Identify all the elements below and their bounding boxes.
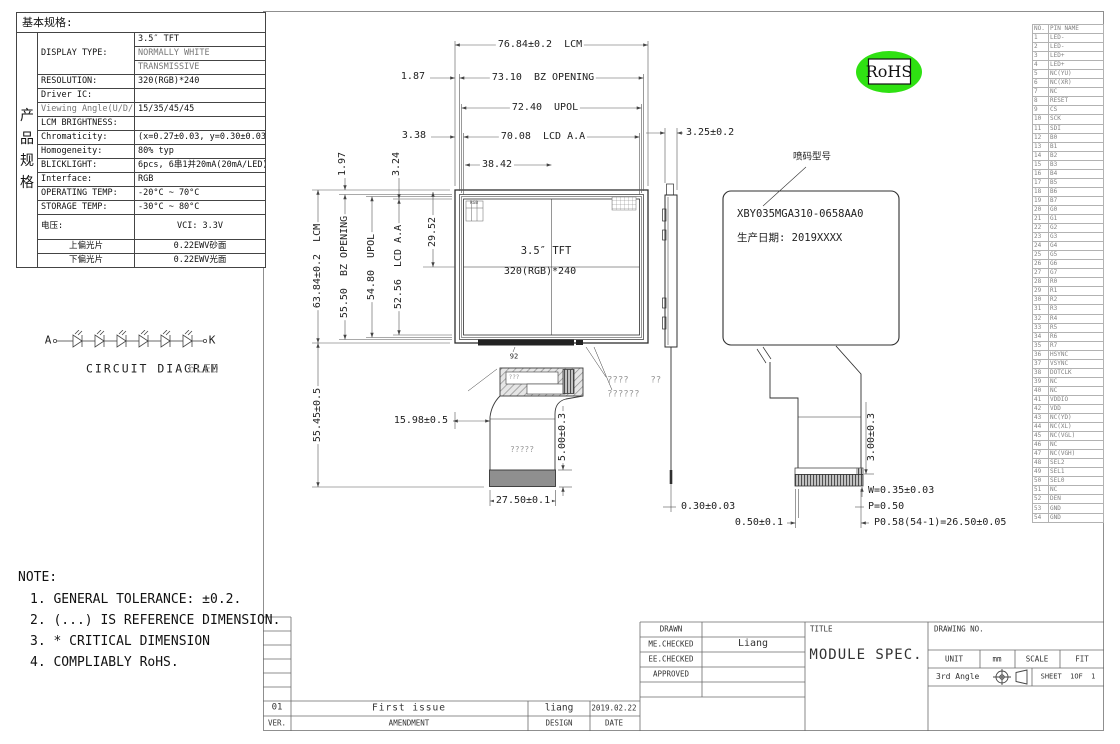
dim-pad-width: W=0.35±0.03 bbox=[866, 486, 936, 496]
pin-row: 38 DOTCLK bbox=[1033, 368, 1104, 377]
note-item-1: 1. GENERAL TOLERANCE: ±0.2. bbox=[30, 593, 241, 606]
dim-bz-height: 55.50 BZ OPENING bbox=[340, 214, 350, 320]
pin-row: 28 R0 bbox=[1033, 278, 1104, 287]
dim-fpc-offset: 15.98±0.5 bbox=[392, 416, 450, 426]
spec-voltage: VCI: 3.3V bbox=[135, 215, 266, 240]
fpc-note-4: ??? bbox=[509, 375, 520, 381]
pin-row: 37 VSYNC bbox=[1033, 359, 1104, 368]
pin-row: 5 NC(YU) bbox=[1033, 70, 1104, 79]
front-view-dimension-lines bbox=[312, 41, 648, 506]
spec-display-type-2: NORMALLY WHITE bbox=[135, 47, 266, 61]
note-item-4: 4. COMPLIABLY RoHS. bbox=[30, 656, 179, 669]
dim-pitch-total: P0.58(54-1)=26.50±0.05 bbox=[872, 518, 1008, 528]
pin-row: 50 SEL0 bbox=[1033, 477, 1104, 486]
panel-type-text: 3.5″ TFT bbox=[521, 246, 572, 257]
spec-resolution-label: RESOLUTION: bbox=[38, 75, 135, 89]
panel-resolution-text: 320(RGB)*240 bbox=[504, 267, 576, 277]
pin-row: 39 NC bbox=[1033, 377, 1104, 386]
pin-row: 45 NC(VGL) bbox=[1033, 432, 1104, 441]
pin-row: 54 GND bbox=[1033, 513, 1104, 522]
dim-upol-height: 54.80 UPOL bbox=[367, 232, 377, 302]
fpc-note-1: ???? ?? bbox=[607, 377, 661, 386]
drawing-title: MODULE SPEC. bbox=[809, 648, 922, 662]
approved-label: APPROVED bbox=[653, 670, 689, 678]
third-angle-projection-icon bbox=[993, 669, 1027, 685]
dim-bz-gap: 1.87 bbox=[399, 72, 427, 82]
rev-design-value: liang bbox=[545, 703, 574, 713]
pin-row: 13 B1 bbox=[1033, 142, 1104, 151]
spec-storage-temp-label: STORAGE TEMP: bbox=[38, 201, 135, 215]
spec-interface: RGB bbox=[135, 173, 266, 187]
pin-row: 40 NC bbox=[1033, 386, 1104, 395]
notes-title: NOTE: bbox=[18, 571, 57, 584]
pin-row: 11 SDI bbox=[1033, 124, 1104, 133]
pin-row: 3 LED+ bbox=[1033, 52, 1104, 61]
rev-ver-value: 01 bbox=[272, 704, 283, 713]
spec-driver-ic-label: Driver IC: bbox=[38, 89, 135, 103]
spec-header: 基本规格: bbox=[16, 12, 266, 33]
spec-chromaticity-label: Chromaticity: bbox=[38, 131, 135, 145]
circuit-cathode-label: K bbox=[209, 335, 216, 346]
pin-row: 31 R3 bbox=[1033, 305, 1104, 314]
front-view-fpc bbox=[468, 347, 612, 487]
unit-value: mm bbox=[992, 655, 1001, 663]
ref-mark-text: 92 bbox=[510, 354, 518, 361]
spec-driver-ic bbox=[135, 89, 266, 103]
pin-rows: 1 LED- 2 LED- 3 LED+ 4 bbox=[1033, 34, 1104, 523]
pin-row: 36 HSYNC bbox=[1033, 350, 1104, 359]
dim-connector-offset: 0.50±0.1 bbox=[733, 518, 785, 528]
spec-brightness-label: LCM BRIGHTNESS: bbox=[38, 117, 135, 131]
spec-bottom-polarizer-label: 下偏光片 bbox=[38, 254, 135, 268]
spec-brightness bbox=[135, 117, 266, 131]
spec-top-polarizer-label: 上偏光片 bbox=[38, 240, 135, 254]
pin-row: 43 NC(YD) bbox=[1033, 414, 1104, 423]
spec-viewing-angle-label: Viewing Angle(U/D/L/R) bbox=[38, 103, 135, 117]
spec-viewing-angle: 15/35/45/45 bbox=[135, 103, 266, 117]
pin-row: 18 B6 bbox=[1033, 187, 1104, 196]
pin-row: 44 NC(XL) bbox=[1033, 423, 1104, 432]
pin-row: 42 VDD bbox=[1033, 404, 1104, 413]
spec-display-type-label: DISPLAY TYPE: bbox=[38, 33, 135, 75]
dim-aa-width: 70.08 LCD A.A bbox=[499, 132, 587, 142]
ee-checked-label: EE.CHECKED bbox=[648, 655, 693, 663]
led-circuit-diagram bbox=[45, 330, 215, 352]
pin-row: 51 NC bbox=[1033, 486, 1104, 495]
rev-design-header: DESIGN bbox=[545, 719, 572, 727]
spec-voltage-label: 电压: bbox=[38, 215, 135, 240]
model-number-text: XBY035MGA310-0658AA0 bbox=[737, 209, 863, 220]
pin-row: 15 B3 bbox=[1033, 160, 1104, 169]
spec-table: 产 品 规 格 DISPLAY TYPE: 3.5″ TFT NORMALLY … bbox=[16, 32, 266, 268]
rev-ver-header: VER. bbox=[268, 719, 286, 727]
spec-homogeneity: 80% typ bbox=[135, 145, 266, 159]
pin-row: 27 G7 bbox=[1033, 269, 1104, 278]
dim-top-gap-bz: 1.97 bbox=[338, 150, 348, 178]
drawing-no-label: DRAWING NO. bbox=[934, 625, 984, 633]
spec-interface-label: Interface: bbox=[38, 173, 135, 187]
me-checked-label: ME.CHECKED bbox=[648, 640, 693, 648]
pin-row: 4 LED+ bbox=[1033, 61, 1104, 70]
fpc-note-2: ?????? bbox=[607, 391, 640, 400]
drawing-sheet: 基本规格: 产 品 规 格 DISPLAY TYPE: 3.5″ TFT NOR… bbox=[0, 0, 1120, 744]
pin-row: 32 R4 bbox=[1033, 314, 1104, 323]
pin-row: 17 B5 bbox=[1033, 178, 1104, 187]
note-item-3: 3. * CRITICAL DIMENSION bbox=[30, 635, 210, 648]
pin-assignment-table: NO. PIN NAME 1 LED- 2 LED- bbox=[1032, 24, 1104, 523]
dim-stiffener-height: 5.00±0.3 bbox=[558, 411, 568, 463]
dim-thickness: 3.25±0.2 bbox=[684, 128, 736, 138]
spec-resolution: 320(RGB)*240 bbox=[135, 75, 266, 89]
pin-row: 14 B2 bbox=[1033, 151, 1104, 160]
dim-connector-height: 3.00±0.3 bbox=[867, 411, 877, 463]
rev-date-header: DATE bbox=[605, 719, 623, 727]
pin-row: 33 R5 bbox=[1033, 323, 1104, 332]
pin-row: 52 DEN bbox=[1033, 495, 1104, 504]
title-label: TITLE bbox=[810, 625, 833, 633]
dim-top-gap-aa: 3.24 bbox=[392, 150, 402, 178]
production-date-text: 生产日期: 2019XXXX bbox=[737, 233, 842, 244]
dim-upol-width: 72.40 UPOL bbox=[510, 103, 580, 113]
checked-by-value: Liang bbox=[738, 639, 768, 649]
pin-row: 53 GND bbox=[1033, 504, 1104, 513]
pin-row: 16 B4 bbox=[1033, 169, 1104, 178]
pin-row: 41 VDDIO bbox=[1033, 395, 1104, 404]
pin-row: 7 NC bbox=[1033, 88, 1104, 97]
pin-row: 24 G4 bbox=[1033, 242, 1104, 251]
rev-date-value: 2019.02.22 bbox=[591, 704, 636, 712]
pin-col-no: NO. bbox=[1033, 25, 1049, 34]
dim-half-height: 29.52 bbox=[428, 215, 438, 249]
rev-amendment-header: AMENDMENT bbox=[389, 719, 430, 727]
led-symbols bbox=[73, 330, 192, 347]
pin-row: 46 NC bbox=[1033, 441, 1104, 450]
inkjet-model-leader-label: 喷码型号 bbox=[793, 152, 831, 162]
pin-row: 21 G1 bbox=[1033, 214, 1104, 223]
spec-side-label: 产 品 规 格 bbox=[17, 33, 38, 268]
dim-fpc-thickness: 0.30±0.03 bbox=[679, 502, 737, 512]
pin-row: 19 B7 bbox=[1033, 196, 1104, 205]
pin-row: 34 R6 bbox=[1033, 332, 1104, 341]
dim-lcm-height: 63.84±0.2 LCM bbox=[313, 222, 323, 310]
projection-angle-label: 3rd Angle bbox=[936, 673, 979, 681]
sheet-frame bbox=[264, 12, 1104, 731]
note-item-2: 2. (...) IS REFERENCE DIMENSION. bbox=[30, 614, 280, 627]
pin-col-name: PIN NAME bbox=[1049, 25, 1104, 34]
pin-row: 8 RESET bbox=[1033, 97, 1104, 106]
pin-row: 12 B0 bbox=[1033, 133, 1104, 142]
spec-top-polarizer: 0.22EWV砂面 bbox=[135, 240, 266, 254]
spec-operating-temp: -20°C ~ 70°C bbox=[135, 187, 266, 201]
pin-row: 10 SCK bbox=[1033, 115, 1104, 124]
pin-row: 25 G5 bbox=[1033, 251, 1104, 260]
unit-label: UNIT bbox=[945, 655, 963, 663]
spec-operating-temp-label: OPERATING TEMP: bbox=[38, 187, 135, 201]
spec-storage-temp: -30°C ~ 80°C bbox=[135, 201, 266, 215]
sheet-label: SHEET 1OF 1 bbox=[1041, 674, 1096, 681]
spec-display-type-3: TRANSMISSIVE bbox=[135, 61, 266, 75]
pin-row: 26 G6 bbox=[1033, 260, 1104, 269]
dim-fpc-length: 55.45±0.5 bbox=[313, 386, 323, 444]
pin-row: 1 LED- bbox=[1033, 34, 1104, 43]
circuit-anode-label: A bbox=[45, 335, 52, 346]
drawn-label: DRAWN bbox=[660, 625, 683, 633]
dim-tail-width: 27.50±0.1 bbox=[494, 496, 552, 506]
pin-row: 20 G0 bbox=[1033, 205, 1104, 214]
dim-pitch: P=0.50 bbox=[866, 502, 906, 512]
fpc-note-3: ????? bbox=[510, 446, 534, 454]
spec-homogeneity-label: Homogeneity: bbox=[38, 145, 135, 159]
pin-row: 49 SEL1 bbox=[1033, 468, 1104, 477]
pin-row: 9 CS bbox=[1033, 106, 1104, 115]
spec-backlight-label: BLICKLIGHT: bbox=[38, 159, 135, 173]
dim-bz-width: 73.10 BZ OPENING bbox=[490, 73, 596, 83]
pin-row: 29 R1 bbox=[1033, 287, 1104, 296]
pin-row: 23 G3 bbox=[1033, 233, 1104, 242]
spec-chromaticity: (x=0.27±0.03, y=0.30±0.03) bbox=[135, 131, 266, 145]
scale-value: FIT bbox=[1075, 655, 1089, 663]
corner-grid-icon bbox=[612, 197, 636, 210]
pixel-icon-label: RGB bbox=[470, 202, 478, 207]
pin-row: 48 SEL2 bbox=[1033, 459, 1104, 468]
dim-aa-gap: 3.38 bbox=[400, 131, 428, 141]
pin-row: 47 NC(VGH) bbox=[1033, 450, 1104, 459]
dim-aa-height: 52.56 LCD A.A bbox=[394, 223, 404, 311]
scale-label: SCALE bbox=[1026, 655, 1049, 663]
pin-row: 30 R2 bbox=[1033, 296, 1104, 305]
rev-amendment-value: First issue bbox=[372, 703, 446, 713]
pin-row: 35 R7 bbox=[1033, 341, 1104, 350]
spec-backlight: 6pcs, 6串1并20mA(20mA/LED) bbox=[135, 159, 266, 173]
side-view-outline bbox=[663, 184, 678, 484]
circuit-led-count: 6LED bbox=[188, 363, 220, 375]
pin-row: 2 LED- bbox=[1033, 43, 1104, 52]
pin-row: 6 NC(XR) bbox=[1033, 79, 1104, 88]
dim-half-width: 38.42 bbox=[480, 160, 514, 170]
pin-row: 22 G2 bbox=[1033, 224, 1104, 233]
spec-bottom-polarizer: 0.22EWV光面 bbox=[135, 254, 266, 268]
basic-spec-panel: 基本规格: 产 品 规 格 DISPLAY TYPE: 3.5″ TFT NOR… bbox=[16, 12, 266, 268]
spec-display-type-1: 3.5″ TFT bbox=[135, 33, 266, 47]
rohs-badge-text: RoHS bbox=[866, 64, 913, 80]
dim-lcm-width: 76.84±0.2 LCM bbox=[496, 40, 584, 50]
